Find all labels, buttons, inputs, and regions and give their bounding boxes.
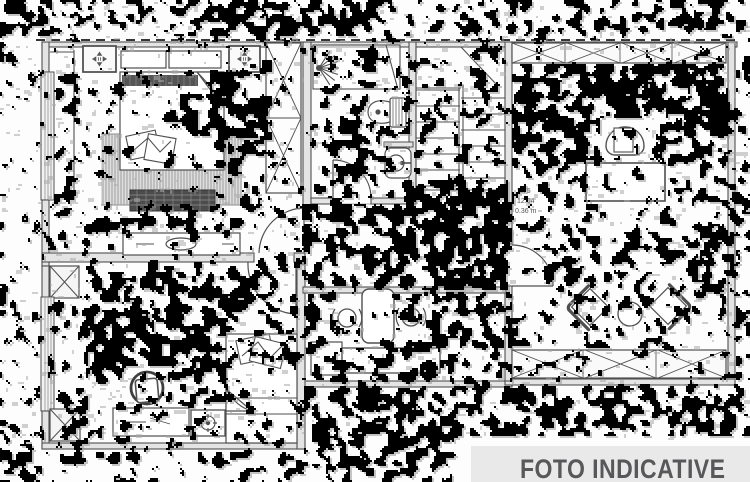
svg-text:2.75: 2.75 bbox=[517, 188, 531, 195]
svg-text:12.04: 12.04 bbox=[517, 198, 535, 205]
svg-text:0.36 m: 0.36 m bbox=[515, 208, 537, 215]
